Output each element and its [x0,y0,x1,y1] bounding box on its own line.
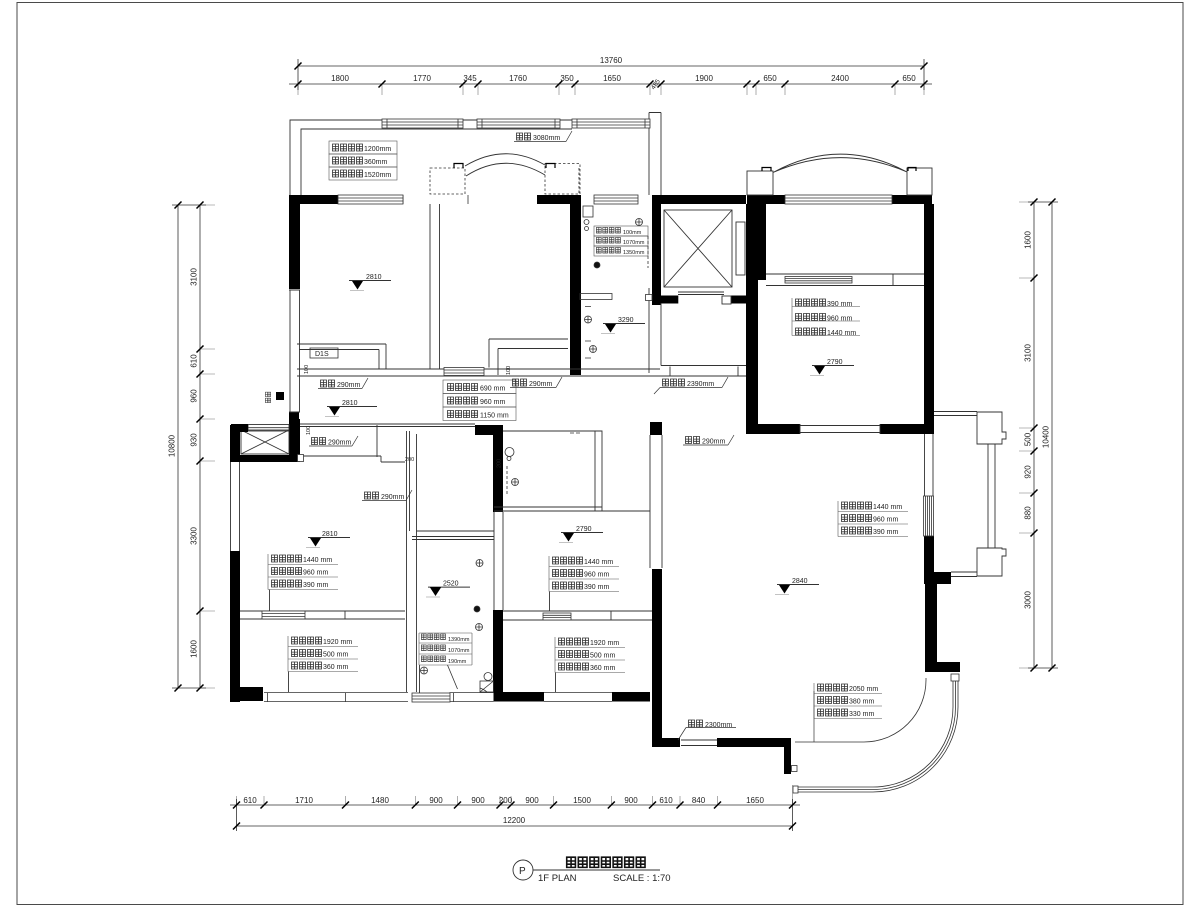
svg-text:290mm: 290mm [529,381,553,388]
svg-text:1920 mm: 1920 mm [590,640,619,647]
svg-text:1600: 1600 [1024,231,1033,249]
svg-text:390 mm: 390 mm [827,301,852,308]
svg-text:200: 200 [497,459,503,468]
svg-text:1070mm: 1070mm [623,240,645,246]
svg-text:1520mm: 1520mm [364,172,391,179]
svg-text:3300: 3300 [190,527,199,545]
svg-text:1350mm: 1350mm [623,250,645,256]
svg-text:900: 900 [525,796,539,805]
svg-text:360 mm: 360 mm [323,664,348,671]
svg-text:10400: 10400 [1042,425,1051,448]
svg-text:1070mm: 1070mm [448,648,470,654]
svg-text:2300mm: 2300mm [705,722,732,729]
svg-text:290mm: 290mm [702,439,726,446]
svg-text:500 mm: 500 mm [590,653,615,660]
svg-text:1F PLAN: 1F PLAN [538,873,577,884]
svg-text:3100: 3100 [1024,344,1033,362]
svg-text:100: 100 [304,365,310,374]
svg-text:2810: 2810 [342,400,358,407]
svg-text:2400: 2400 [831,74,849,83]
svg-text:290mm: 290mm [381,494,405,501]
svg-text:1710: 1710 [295,796,313,805]
svg-text:360 mm: 360 mm [590,665,615,672]
svg-text:960 mm: 960 mm [303,570,328,577]
svg-text:650: 650 [763,74,777,83]
svg-text:485: 485 [650,78,662,91]
svg-text:900: 900 [624,796,638,805]
svg-text:380 mm: 380 mm [849,699,874,706]
svg-text:P: P [519,866,526,877]
svg-text:2840: 2840 [792,578,808,585]
svg-text:840: 840 [692,796,706,805]
svg-text:100: 100 [506,366,512,375]
svg-text:1440 mm: 1440 mm [827,330,856,337]
svg-text:100mm: 100mm [623,230,642,236]
svg-text:390 mm: 390 mm [303,582,328,589]
svg-text:900: 900 [429,796,443,805]
svg-text:1440 mm: 1440 mm [303,557,332,564]
svg-text:960 mm: 960 mm [827,316,852,323]
svg-text:345: 345 [463,74,477,83]
svg-text:610: 610 [659,796,673,805]
svg-text:2390mm: 2390mm [687,381,714,388]
svg-text:1200mm: 1200mm [364,146,391,153]
svg-text:2810: 2810 [322,531,338,538]
svg-text:1440 mm: 1440 mm [584,559,613,566]
svg-text:2520: 2520 [443,581,459,588]
svg-text:960: 960 [190,389,199,403]
svg-text:1390mm: 1390mm [448,637,470,643]
svg-text:500 mm: 500 mm [323,652,348,659]
svg-text:1900: 1900 [695,74,713,83]
svg-text:290mm: 290mm [328,440,352,447]
svg-text:1800: 1800 [331,74,349,83]
svg-text:350: 350 [560,74,574,83]
svg-text:900: 900 [471,796,485,805]
svg-text:1150 mm: 1150 mm [480,413,509,420]
svg-text:1920 mm: 1920 mm [323,639,352,646]
svg-text:3100: 3100 [190,268,199,286]
svg-text:2790: 2790 [576,526,592,533]
svg-text:1440 mm: 1440 mm [873,504,902,511]
svg-text:960 mm: 960 mm [584,572,609,579]
svg-text:1770: 1770 [413,74,431,83]
svg-text:D1S: D1S [315,351,329,358]
svg-text:1480: 1480 [371,796,389,805]
svg-text:500: 500 [1024,432,1033,446]
svg-text:10800: 10800 [168,434,177,457]
svg-text:2050 mm: 2050 mm [849,686,878,693]
svg-text:610: 610 [243,796,257,805]
svg-text:360mm: 360mm [364,159,388,166]
svg-text:1500: 1500 [573,796,591,805]
svg-text:610: 610 [190,354,199,368]
svg-text:930: 930 [190,433,199,447]
svg-text:3000: 3000 [1024,591,1033,609]
svg-text:1650: 1650 [746,796,764,805]
svg-text:3080mm: 3080mm [533,135,560,142]
svg-text:1650: 1650 [603,74,621,83]
svg-text:SCALE : 1:70: SCALE : 1:70 [613,873,671,884]
svg-text:190mm: 190mm [448,659,467,665]
svg-text:2810: 2810 [366,274,382,281]
svg-text:200: 200 [499,796,513,805]
svg-text:1600: 1600 [190,640,199,658]
svg-text:690 mm: 690 mm [480,386,505,393]
svg-text:390 mm: 390 mm [873,529,898,536]
svg-text:2790: 2790 [827,359,843,366]
svg-text:100: 100 [306,426,312,435]
svg-text:390 mm: 390 mm [584,584,609,591]
svg-text:650: 650 [902,74,916,83]
svg-text:880: 880 [1024,506,1033,520]
svg-text:1760: 1760 [509,74,527,83]
svg-text:960 mm: 960 mm [873,517,898,524]
svg-text:960 mm: 960 mm [480,399,505,406]
svg-text:290mm: 290mm [337,382,361,389]
svg-text:330 mm: 330 mm [849,711,874,718]
svg-text:12200: 12200 [503,816,526,825]
svg-text:13760: 13760 [600,56,623,65]
svg-text:3290: 3290 [618,317,634,324]
svg-text:920: 920 [1024,465,1033,479]
svg-text:200: 200 [405,457,414,463]
